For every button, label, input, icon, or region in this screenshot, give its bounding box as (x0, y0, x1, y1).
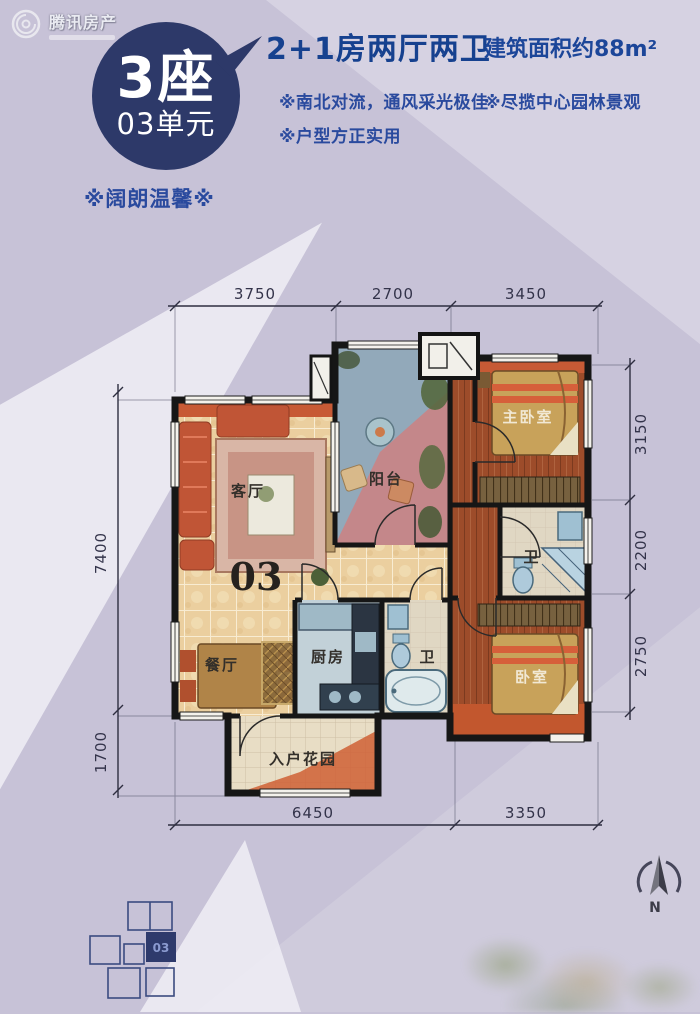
keyplan-unit-label: 03 (153, 941, 170, 955)
dim-bottom-2: 3350 (505, 804, 547, 822)
label-dining: 餐厅 (205, 656, 239, 674)
dim-top-3: 3450 (505, 285, 547, 303)
master-bedroom-furniture (478, 371, 580, 503)
watermark-brand: 腾讯房产 (49, 9, 117, 33)
dim-right-1: 3150 (632, 413, 650, 455)
label-bedroom: 卧室 (515, 668, 549, 686)
feature-2: ※尽揽中心园林景观 (484, 88, 641, 113)
watermark: 腾讯房产 (8, 6, 117, 42)
dim-top-2: 2700 (372, 285, 414, 303)
page-title: 2+1房两厅两卫 (266, 24, 491, 68)
label-kitchen: 厨房 (311, 648, 345, 666)
label-garden: 入户花园 (269, 750, 337, 768)
tagline: ※阔朗温馨※ (84, 183, 215, 213)
unit-number: 03 (230, 554, 283, 599)
dim-left-2: 1700 (92, 731, 110, 773)
watermark-logo-icon (8, 6, 44, 42)
label-living: 客厅 (230, 482, 265, 500)
dim-top-1: 3750 (234, 285, 276, 303)
watermark-subtext-blur (49, 35, 115, 40)
label-master: 主卧室 (502, 408, 553, 426)
unit-label: 03单元 (92, 107, 240, 142)
dim-right-3: 2750 (632, 635, 650, 677)
dim-left-1: 7400 (92, 532, 110, 574)
compass-label: N (649, 900, 661, 916)
feature-3: ※户型方正实用 (279, 122, 401, 147)
floor-plan: 3750 2700 3450 3150 2200 2750 7400 1700 … (80, 272, 670, 852)
area-label: 建筑面积约88m² (484, 31, 657, 63)
building-key-plan: 03 (50, 888, 210, 1014)
dim-bottom-1: 6450 (292, 804, 334, 822)
dim-right-2: 2200 (632, 529, 650, 571)
bedroom-furniture (478, 604, 580, 714)
label-bath-b: 卫 (419, 648, 436, 666)
label-balcony: 阳台 (369, 470, 403, 488)
compass: N (628, 850, 692, 926)
compass-icon (638, 855, 679, 895)
bubble-tail (216, 34, 266, 80)
feature-1: ※南北对流，通风采光极佳 (279, 88, 489, 113)
